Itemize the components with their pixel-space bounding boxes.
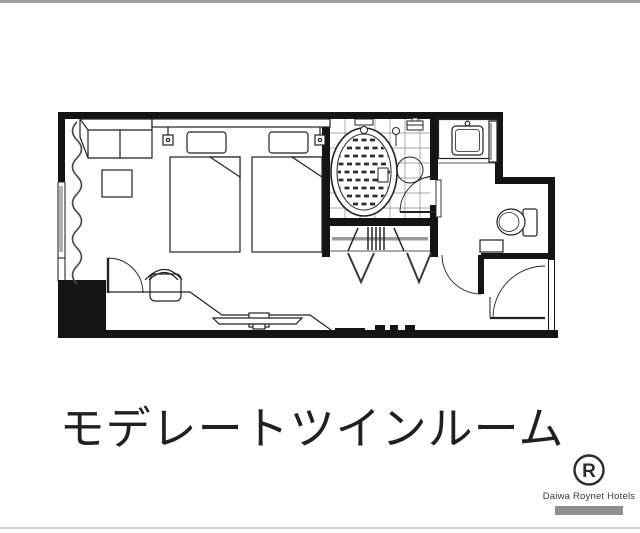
bath-stool (397, 157, 423, 183)
toilet (497, 209, 537, 236)
bath-shelf-icon (407, 118, 423, 130)
washroom (436, 120, 498, 295)
bed-right (252, 132, 322, 252)
washroom-door (442, 255, 481, 294)
mirror (489, 121, 497, 162)
curtain-icon (73, 122, 82, 284)
brand-block: R Daiwa Roynet Hotels (537, 451, 640, 515)
chair (145, 270, 182, 302)
toilet-room (480, 209, 537, 252)
side-table (102, 170, 132, 197)
daiwa-roynet-logo-icon: R (570, 451, 608, 489)
entrance-door (490, 266, 545, 318)
pillow (269, 132, 308, 153)
bathtub (331, 119, 397, 216)
pillow (187, 132, 226, 153)
reading-light-icon-left (163, 127, 173, 145)
sofa (80, 119, 152, 158)
closet (330, 227, 431, 282)
toilet-shelf (480, 240, 503, 252)
bedroom-door (108, 258, 143, 293)
washroom-door-leaf (478, 255, 484, 294)
brand-badge (555, 506, 623, 515)
room-title: モデレートツインルーム (0, 392, 632, 457)
door-panel (436, 180, 441, 217)
bathroom (330, 118, 436, 218)
screenshot-root: モデレートツインルーム R Daiwa Roynet Hotels (0, 0, 640, 533)
luggage-rack-icon (348, 253, 431, 282)
shower-icon (393, 128, 400, 147)
logo-monogram: R (582, 461, 596, 482)
window-glass (59, 186, 63, 252)
brand-name: Daiwa Roynet Hotels (537, 491, 640, 502)
bedroom-furniture (80, 119, 331, 330)
bottom-divider-line (0, 527, 640, 529)
tub-faucet-icon (355, 119, 373, 125)
tub-handrail-icon (378, 168, 388, 182)
bed-left (170, 132, 240, 252)
pipe-shaft-column (58, 280, 106, 338)
headboard (152, 119, 330, 127)
